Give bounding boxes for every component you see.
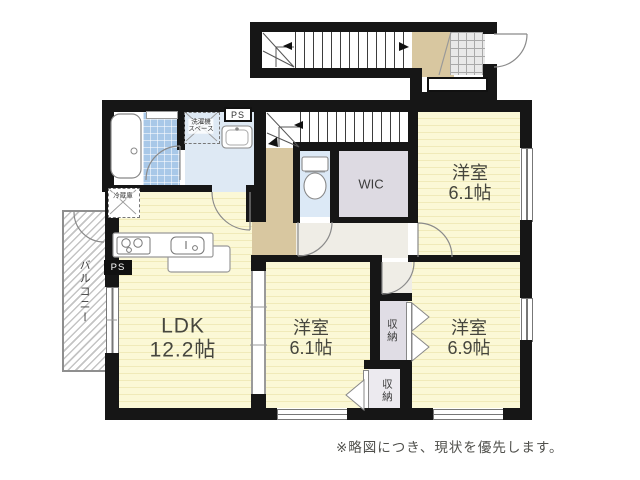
room-label-bedroom-top-size: 6.1帖 — [448, 183, 491, 203]
bathtub — [111, 114, 141, 178]
washer-space-label-line2: スペース — [188, 126, 213, 133]
room-label-bedroom-top: 洋室 6.1帖 — [448, 163, 491, 203]
closet-bottom-label: 収納 — [380, 379, 392, 404]
washbasin — [222, 126, 252, 148]
refrigerator-label: 冷蔵庫 — [112, 192, 134, 199]
washer-space-label: 洗濯機 スペース — [188, 119, 213, 134]
room-label-wic: WIC — [358, 178, 383, 193]
kitchen-counter — [113, 233, 230, 272]
room-label-ldk-name: LDK — [150, 314, 217, 338]
toilet-door-arc — [298, 222, 332, 256]
bedroom-top-door-arc — [418, 223, 452, 257]
balcony-label: バルコニー — [78, 260, 90, 325]
room-label-ldk: LDK 12.2帖 — [150, 314, 217, 361]
plan-line-art — [0, 0, 640, 480]
room-label-bedroom-top-name: 洋室 — [448, 163, 491, 183]
bathroom-door-arc — [146, 146, 180, 180]
stove — [117, 237, 150, 254]
floor-plan: PS PS — [0, 0, 640, 480]
washroom-door-arc — [212, 192, 250, 230]
stair-direction-arrows — [268, 42, 409, 147]
room-label-ldk-size: 12.2帖 — [150, 338, 217, 362]
room-label-bedroom-right-size: 6.9帖 — [447, 338, 490, 358]
room-label-bedroom-right: 洋室 6.9帖 — [447, 318, 490, 358]
entrance-door-arc — [494, 34, 527, 67]
room-label-bedroom-right-name: 洋室 — [447, 318, 490, 338]
bedroom-right-door-arc — [382, 262, 414, 294]
balcony-door-arc — [74, 212, 104, 242]
toilet — [302, 157, 328, 199]
room-label-bedroom-mid: 洋室 6.1帖 — [289, 318, 332, 358]
genkan-edge-line — [439, 32, 451, 75]
disclaimer-note: ※略図につき、現状を優先します。 — [336, 436, 564, 456]
room-label-bedroom-mid-size: 6.1帖 — [289, 338, 332, 358]
staircase-exterior-winder-lines — [263, 33, 294, 67]
closet-top-label: 収納 — [385, 319, 397, 344]
kitchen-sink — [171, 237, 204, 254]
room-label-bedroom-mid-name: 洋室 — [289, 318, 332, 338]
